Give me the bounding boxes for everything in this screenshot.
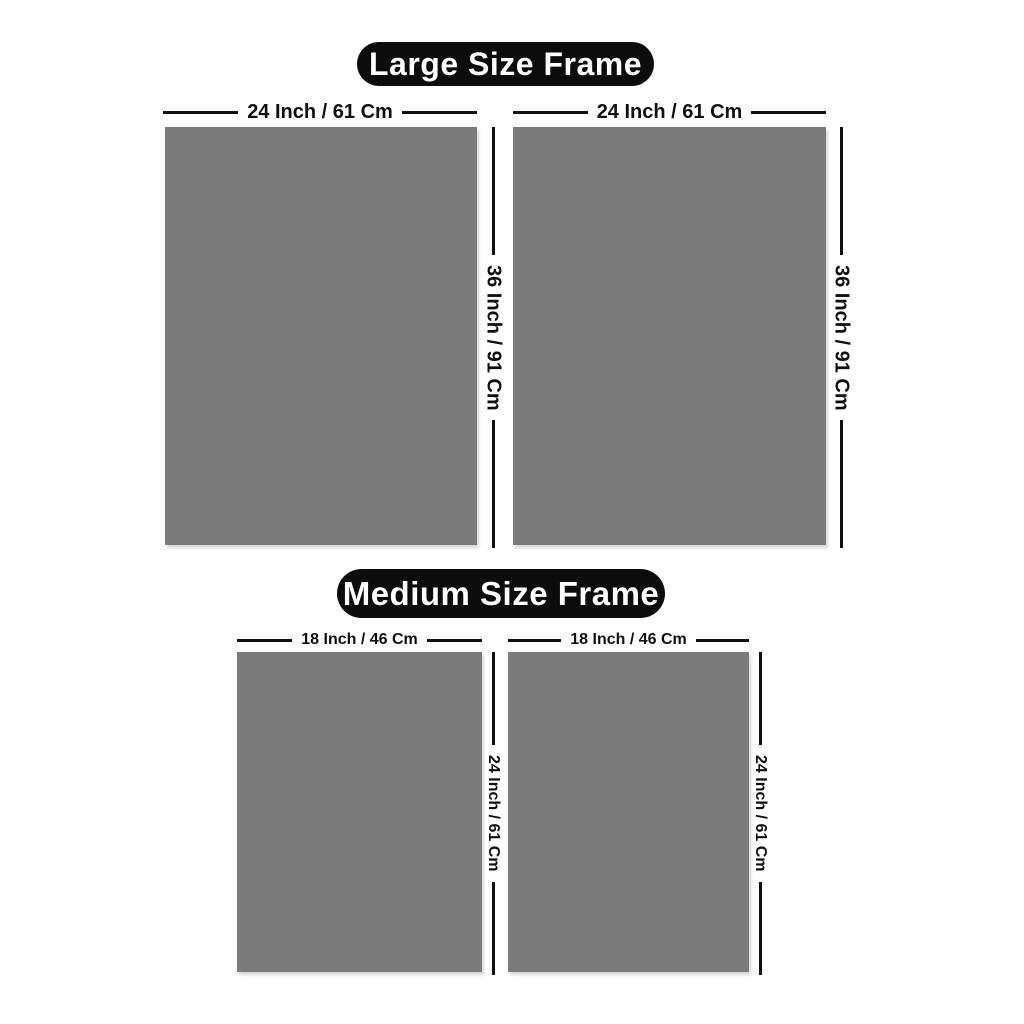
medium-frame-right-height-dimension: 24 Inch / 61 Cm [749,652,771,975]
dimension-line [759,652,762,745]
height-dimension-label: 24 Inch / 61 Cm [484,755,502,872]
dimension-line [840,420,843,548]
dimension-line [759,882,762,975]
dimension-line [492,420,495,548]
dimension-line [427,639,482,642]
large-frame-left-width-dimension: 24 Inch / 61 Cm [163,99,477,125]
large-section-title: Large Size Frame [369,46,642,83]
dimension-line [751,111,826,114]
dimension-line [492,652,495,745]
large-section-title-badge: Large Size Frame [357,42,654,86]
dimension-line [492,882,495,975]
medium-frame-left-preview [237,652,482,972]
dimension-line [508,639,561,642]
medium-frame-right-width-dimension: 18 Inch / 46 Cm [508,629,749,651]
large-frame-left-preview [165,127,477,545]
dimension-line [402,111,477,114]
medium-frame-left-width-dimension: 18 Inch / 46 Cm [237,629,482,651]
dimension-line [237,639,292,642]
width-dimension-label: 24 Inch / 61 Cm [247,101,393,124]
frame-size-guide: Large Size Frame 24 Inch / 61 Cm 24 Inch… [0,0,1024,1024]
width-dimension-label: 18 Inch / 46 Cm [570,631,687,649]
dimension-line [492,127,495,255]
dimension-line [513,111,588,114]
medium-section-title: Medium Size Frame [343,575,660,613]
medium-frame-left-height-dimension: 24 Inch / 61 Cm [482,652,504,975]
height-dimension-label: 36 Inch / 91 Cm [482,265,505,411]
large-frame-right-preview [513,127,826,545]
width-dimension-label: 18 Inch / 46 Cm [301,631,418,649]
width-dimension-label: 24 Inch / 61 Cm [597,101,743,124]
medium-section-title-badge: Medium Size Frame [337,569,665,618]
height-dimension-label: 36 Inch / 91 Cm [830,265,853,411]
large-frame-right-height-dimension: 36 Inch / 91 Cm [828,127,854,548]
large-frame-left-height-dimension: 36 Inch / 91 Cm [480,127,506,548]
large-frame-right-width-dimension: 24 Inch / 61 Cm [513,99,826,125]
dimension-line [163,111,238,114]
dimension-line [840,127,843,255]
dimension-line [696,639,749,642]
height-dimension-label: 24 Inch / 61 Cm [751,755,769,872]
medium-frame-right-preview [508,652,749,972]
